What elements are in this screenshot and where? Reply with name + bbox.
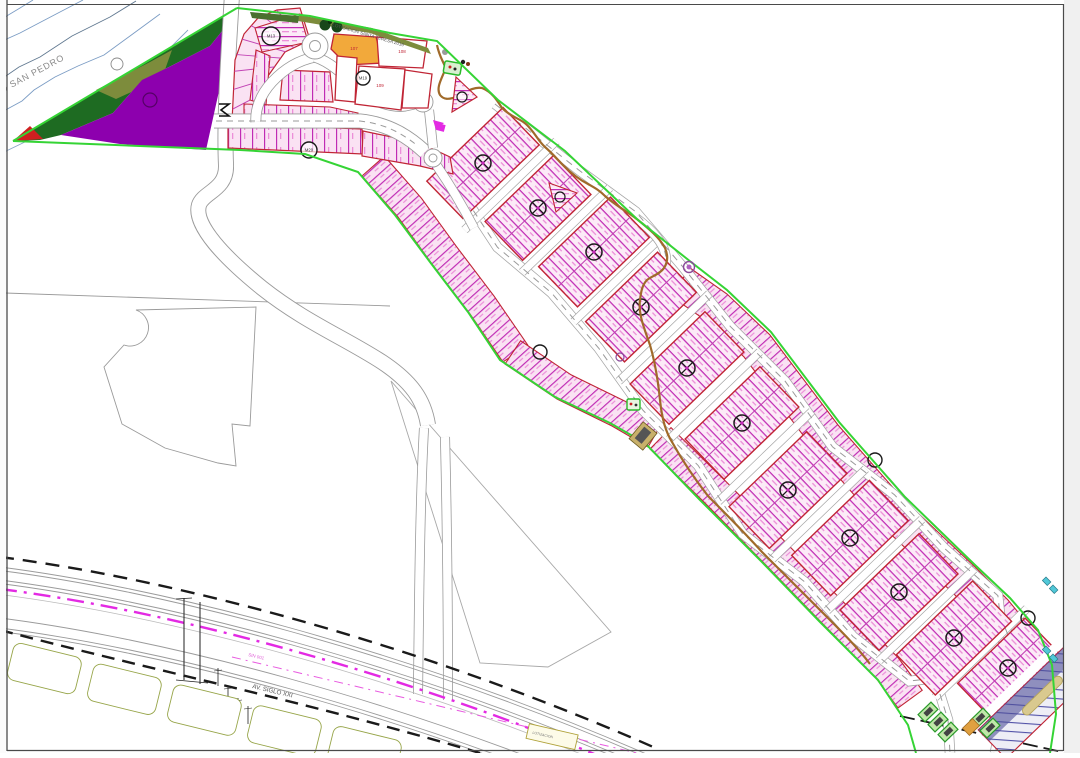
svg-text:107: 107 <box>350 46 358 51</box>
svg-text:M19: M19 <box>359 76 368 81</box>
svg-text:109: 109 <box>376 83 384 88</box>
svg-text:M13: M13 <box>267 34 276 39</box>
svg-text:108: 108 <box>398 49 406 54</box>
svg-text:M20: M20 <box>305 148 314 153</box>
